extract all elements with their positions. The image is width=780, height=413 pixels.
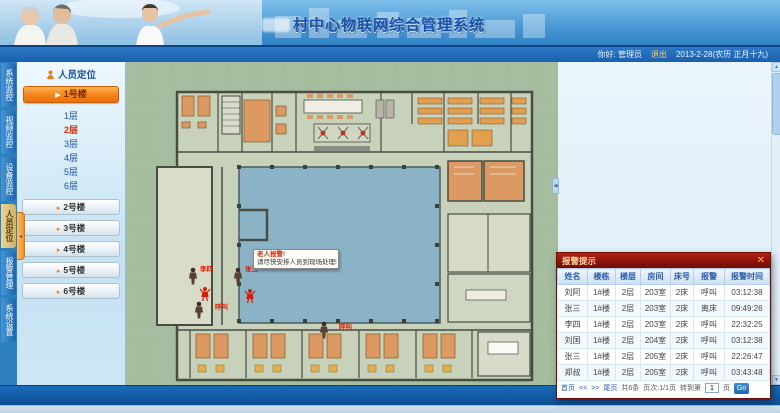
page-info: 页次:1/1页 (643, 383, 676, 393)
table-cell: 2层 (616, 317, 641, 333)
app-window: 村中心物联网综合管理系统 你好: 管理员 退出 2013-2-28(农历 正月十… (0, 0, 780, 413)
alarm-tooltip: 老人报警! 请尽快安排人员到现场处理! (253, 249, 339, 269)
building-button-label: 2号楼 (63, 202, 85, 212)
scroll-up-button[interactable]: ▲ (772, 62, 780, 72)
goto-label: 转到第 (680, 383, 701, 393)
building-button-3[interactable]: ▸3号楼 (22, 220, 120, 236)
info-bar: 你好: 管理员 退出 2013-2-28(农历 正月十九) (0, 45, 780, 62)
sidebar-collapse-handle[interactable]: ◂ (17, 212, 25, 260)
table-cell: 2床 (671, 301, 694, 317)
last-page-link[interactable]: 尾页 (603, 383, 617, 393)
nav-tab-6[interactable]: 系统设置 (1, 298, 16, 342)
table-cell: 203室 (641, 301, 671, 317)
vertical-scrollbar[interactable]: ▲ ▼ (771, 62, 780, 385)
table-cell: 刘阿 (558, 285, 588, 301)
table-cell: 2床 (671, 333, 694, 349)
record-count: 共6条 (621, 383, 639, 393)
table-cell: 呼叫 (694, 285, 725, 301)
table-cell: 呼叫 (694, 349, 725, 365)
arrow-icon: ▸ (57, 205, 61, 212)
nav-tab-3[interactable]: 设备监控 (1, 157, 16, 201)
table-cell: 03:43:48 (725, 365, 770, 381)
table-cell: 22:26:47 (725, 349, 770, 365)
column-header: 床号 (671, 269, 694, 285)
table-cell: 2层 (616, 285, 641, 301)
table-cell: 2层 (616, 301, 641, 317)
pagination-bar: 首页 << >> 尾页 共6条 页次:1/1页 转到第 页 Go (557, 381, 770, 395)
table-row[interactable]: 刘国1#楼2层204室2床呼叫03:12:38 (558, 333, 770, 349)
table-cell: 09:49:26 (725, 301, 770, 317)
greeting-text: 你好: 管理员 (598, 49, 642, 60)
table-cell: 2层 (616, 365, 641, 381)
table-cell: 03:12:38 (725, 285, 770, 301)
table-cell: 2床 (671, 285, 694, 301)
table-cell: 2床 (671, 365, 694, 381)
panel-collapse-arrow[interactable]: ◀ (552, 178, 559, 194)
arrow-icon: ▶ (55, 92, 60, 99)
column-header: 楼栋 (588, 269, 616, 285)
arrow-icon: ▸ (57, 268, 61, 275)
table-cell: 1#楼 (588, 285, 616, 301)
arrow-icon: ▸ (57, 226, 61, 233)
column-header: 房间 (641, 269, 671, 285)
building-button-label: 5号楼 (63, 265, 85, 275)
table-cell: 2层 (616, 333, 641, 349)
go-button[interactable]: Go (734, 383, 749, 394)
table-cell: 郑叔 (558, 365, 588, 381)
floor-item-5[interactable]: 5层 (17, 165, 125, 179)
table-cell: 刘国 (558, 333, 588, 349)
table-row[interactable]: 张三1#楼2层203室2床离床09:49:26 (558, 301, 770, 317)
table-row[interactable]: 李四1#楼2层203室2床呼叫22:32:25 (558, 317, 770, 333)
table-cell: 呼叫 (694, 365, 725, 381)
marker-label: 呼叫 (339, 322, 352, 331)
floorplan-graphics (126, 62, 558, 385)
column-header: 报警 (694, 269, 725, 285)
building-button-4[interactable]: ▸4号楼 (22, 241, 120, 257)
panel-title: 人员定位 (17, 67, 125, 81)
marker-label: 呼叫 (215, 302, 228, 311)
table-cell: 204室 (641, 333, 671, 349)
building-button-label: 3号楼 (63, 223, 85, 233)
tooltip-title: 老人报警! (257, 251, 335, 259)
column-header: 姓名 (558, 269, 588, 285)
table-cell: 张三 (558, 349, 588, 365)
alarm-popup: 报警提示 ✕ 姓名楼栋楼层房间床号报警报警时间 刘阿1#楼2层203室2床呼叫0… (556, 252, 771, 399)
marker-label: 李四 (199, 264, 214, 273)
sidebar-panel: 人员定位 ▶1号楼 1层2层3层4层5层6层 ▸2号楼▸3号楼▸4号楼▸5号楼▸… (17, 62, 126, 385)
elderly-photo (0, 0, 262, 45)
building-button-label: 4号楼 (63, 244, 85, 254)
table-cell: 1#楼 (588, 349, 616, 365)
prev-page-link[interactable]: << (579, 385, 587, 392)
table-cell: 203室 (641, 317, 671, 333)
column-header: 报警时间 (725, 269, 770, 285)
table-cell: 1#楼 (588, 333, 616, 349)
building-button-5[interactable]: ▸5号楼 (22, 262, 120, 278)
building-button-6[interactable]: ▸6号楼 (22, 283, 120, 299)
table-cell: 2床 (671, 349, 694, 365)
scroll-down-button[interactable]: ▼ (772, 375, 780, 385)
next-page-link[interactable]: >> (591, 385, 599, 392)
building-list: ▸2号楼▸3号楼▸4号楼▸5号楼▸6号楼 (17, 199, 125, 299)
tooltip-message: 请尽快安排人员到现场处理! (257, 259, 335, 267)
floor-item-2[interactable]: 2层 (17, 123, 125, 137)
table-row[interactable]: 郑叔1#楼2层205室2床呼叫03:43:48 (558, 365, 770, 381)
table-cell: 03:12:38 (725, 333, 770, 349)
nav-tab-5[interactable]: 报警管理 (1, 251, 16, 295)
app-title: 村中心物联网综合管理系统 (293, 14, 485, 35)
table-cell: 2床 (671, 317, 694, 333)
floorplan-svg: 李四张三呼叫呼叫 (126, 62, 558, 385)
table-cell: 205室 (641, 349, 671, 365)
scrollbar-thumb[interactable] (772, 73, 780, 135)
floor-item-4[interactable]: 4层 (17, 151, 125, 165)
close-icon[interactable]: ✕ (757, 256, 765, 266)
page-number-input[interactable] (705, 383, 719, 393)
alarm-table-header: 姓名楼栋楼层房间床号报警报警时间 (558, 269, 770, 285)
nav-tab-2[interactable]: 视频监控 (1, 110, 16, 154)
floor-item-3[interactable]: 3层 (17, 137, 125, 151)
bottom-strip (0, 405, 780, 413)
vertical-nav: 系统监控视频监控设备监控人员定位报警管理系统设置 (0, 62, 17, 385)
floor-list: 1层2层3层4层5层6层 (17, 109, 125, 193)
table-cell: 203室 (641, 285, 671, 301)
table-cell: 1#楼 (588, 301, 616, 317)
arrow-icon: ▸ (57, 289, 61, 296)
alarm-popup-titlebar[interactable]: 报警提示 ✕ (557, 253, 770, 268)
table-row[interactable]: 张三1#楼2层205室2床呼叫22:26:47 (558, 349, 770, 365)
building-button-label: 6号楼 (63, 286, 85, 296)
building-button-1[interactable]: ▶1号楼 (23, 86, 119, 103)
building-button-2[interactable]: ▸2号楼 (22, 199, 120, 215)
logout-link[interactable]: 退出 (651, 49, 667, 60)
table-cell: 李四 (558, 317, 588, 333)
table-cell: 离床 (694, 301, 725, 317)
header: 村中心物联网综合管理系统 (0, 0, 780, 45)
table-cell: 205室 (641, 365, 671, 381)
table-cell: 1#楼 (588, 317, 616, 333)
page-unit: 页 (723, 383, 730, 393)
arrow-icon: ▸ (57, 247, 61, 254)
table-cell: 张三 (558, 301, 588, 317)
table-cell: 2层 (616, 349, 641, 365)
nav-tab-1[interactable]: 系统监控 (1, 63, 16, 107)
nav-tab-4[interactable]: 人员定位 (1, 204, 16, 248)
censored-title-prefix (262, 18, 290, 32)
table-row[interactable]: 刘阿1#楼2层203室2床呼叫03:12:38 (558, 285, 770, 301)
floor-item-6[interactable]: 6层 (17, 179, 125, 193)
table-cell: 22:32:25 (725, 317, 770, 333)
date-text: 2013-2-28(农历 正月十九) (676, 49, 768, 60)
table-cell: 呼叫 (694, 317, 725, 333)
alarm-table: 姓名楼栋楼层房间床号报警报警时间 刘阿1#楼2层203室2床呼叫03:12:38… (557, 268, 770, 381)
table-cell: 呼叫 (694, 333, 725, 349)
person-icon (46, 70, 55, 79)
floorplan-area[interactable]: 李四张三呼叫呼叫 (126, 62, 558, 385)
first-page-link[interactable]: 首页 (561, 383, 575, 393)
column-header: 楼层 (616, 269, 641, 285)
floor-item-1[interactable]: 1层 (17, 109, 125, 123)
alarm-popup-title: 报警提示 (562, 255, 596, 267)
table-cell: 1#楼 (588, 365, 616, 381)
